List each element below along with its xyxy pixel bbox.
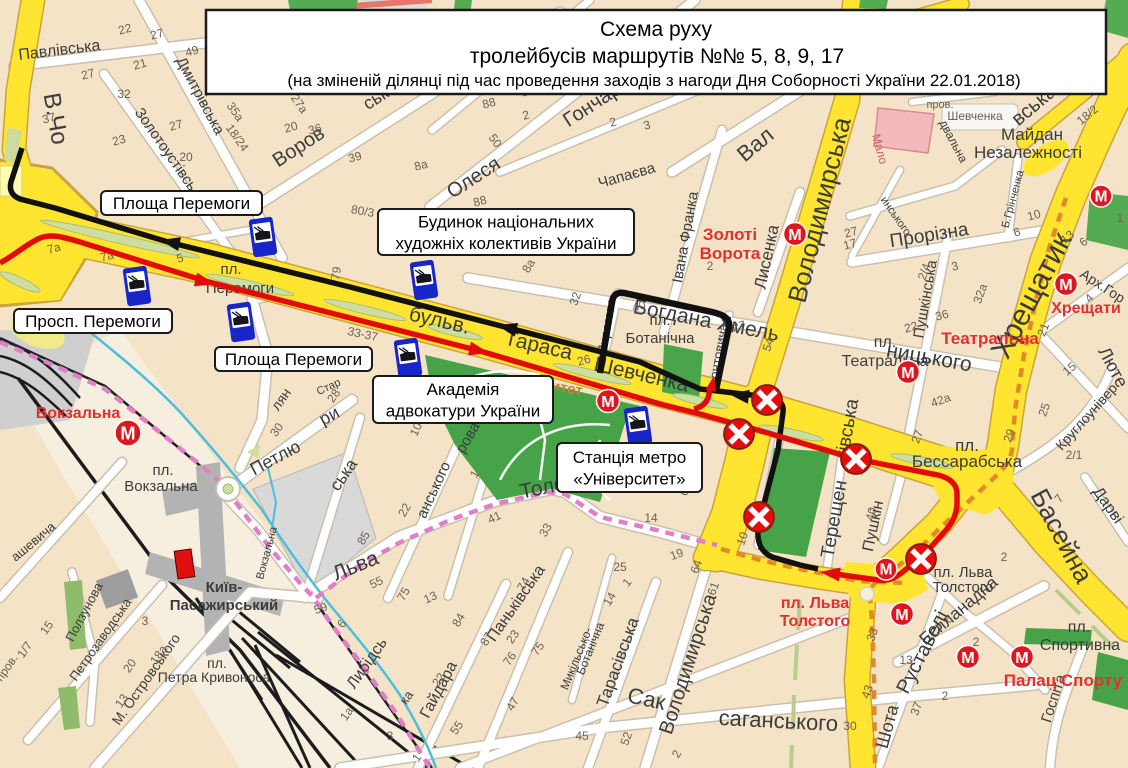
svg-text:пл.: пл. [874,334,896,351]
svg-text:Бессарабська: Бессарабська [912,452,1023,471]
svg-text:2: 2 [1001,550,1008,564]
svg-text:14: 14 [644,511,658,525]
svg-text:Площа Перемоги: Площа Перемоги [225,350,362,369]
svg-text:адвокатури України: адвокатури України [386,401,541,420]
svg-text:тролейбусів маршрутів №№ 5, 8,: тролейбусів маршрутів №№ 5, 8, 9, 17 [470,45,844,68]
svg-text:М: М [601,393,614,411]
svg-text:Пасажирський: Пасажирський [170,597,279,614]
svg-text:13: 13 [899,653,913,667]
svg-text:Театральна: Театральна [941,329,1039,348]
svg-text:Спортивна: Спортивна [1040,637,1120,654]
svg-text:3: 3 [387,729,394,743]
svg-text:Палац Спорту: Палац Спорту [1004,671,1123,690]
svg-text:2/1: 2/1 [1066,448,1083,462]
svg-text:32: 32 [117,87,131,101]
svg-text:пл.: пл. [220,261,241,278]
svg-text:Толстого: Толстого [780,613,851,630]
svg-text:Золоті: Золоті [703,225,757,244]
svg-text:пл.: пл. [649,312,670,329]
svg-text:Київ-: Київ- [206,579,243,596]
svg-text:«Університет»: «Університет» [573,469,685,488]
svg-text:Площа Перемоги: Площа Перемоги [113,194,250,213]
svg-text:Петра Кривоноса: Петра Кривоноса [158,669,271,685]
svg-text:Незалежності: Незалежності [974,143,1082,162]
svg-text:30: 30 [843,719,857,733]
svg-text:пл. Льва: пл. Льва [781,595,849,612]
svg-text:М: М [880,562,893,579]
svg-text:Вокзальна: Вокзальна [36,405,121,422]
svg-text:2: 2 [707,259,714,273]
svg-text:М: М [1015,649,1028,667]
svg-text:1: 1 [1117,211,1124,225]
svg-text:Майдан: Майдан [1001,125,1063,144]
svg-text:3: 3 [142,614,149,628]
svg-text:М: М [1059,276,1072,294]
svg-text:Толстого: Толстого [933,579,994,596]
svg-text:Хрещати: Хрещати [1051,300,1121,317]
svg-text:Ботанічна: Ботанічна [626,330,696,347]
svg-text:пл.: пл. [152,462,173,479]
svg-text:Схема руху: Схема руху [600,18,713,41]
svg-text:25: 25 [613,560,627,574]
svg-text:М: М [961,649,974,667]
svg-text:20: 20 [179,150,193,164]
svg-text:79: 79 [328,265,344,281]
svg-text:Станція метро: Станція метро [573,448,686,467]
svg-text:М: М [120,424,135,444]
svg-text:М: М [788,226,801,244]
svg-text:Просп. Перемоги: Просп. Перемоги [25,312,161,331]
svg-text:М: М [1095,189,1108,206]
svg-text:Академія: Академія [427,380,500,399]
svg-text:М: М [901,364,914,382]
svg-text:Будинок національних: Будинок національних [418,212,594,231]
svg-text:художніх колективів України: художніх колективів України [396,234,617,253]
svg-text:Вокзальна: Вокзальна [124,478,198,495]
svg-text:Шевченка: Шевченка [947,109,1003,123]
svg-text:2: 2 [942,689,949,703]
svg-text:(на зміненій ділянці під час п: (на зміненій ділянці під час проведення … [287,71,1020,90]
svg-text:пл.: пл. [1068,619,1090,636]
svg-text:М: М [895,606,908,624]
svg-text:45: 45 [575,729,589,743]
